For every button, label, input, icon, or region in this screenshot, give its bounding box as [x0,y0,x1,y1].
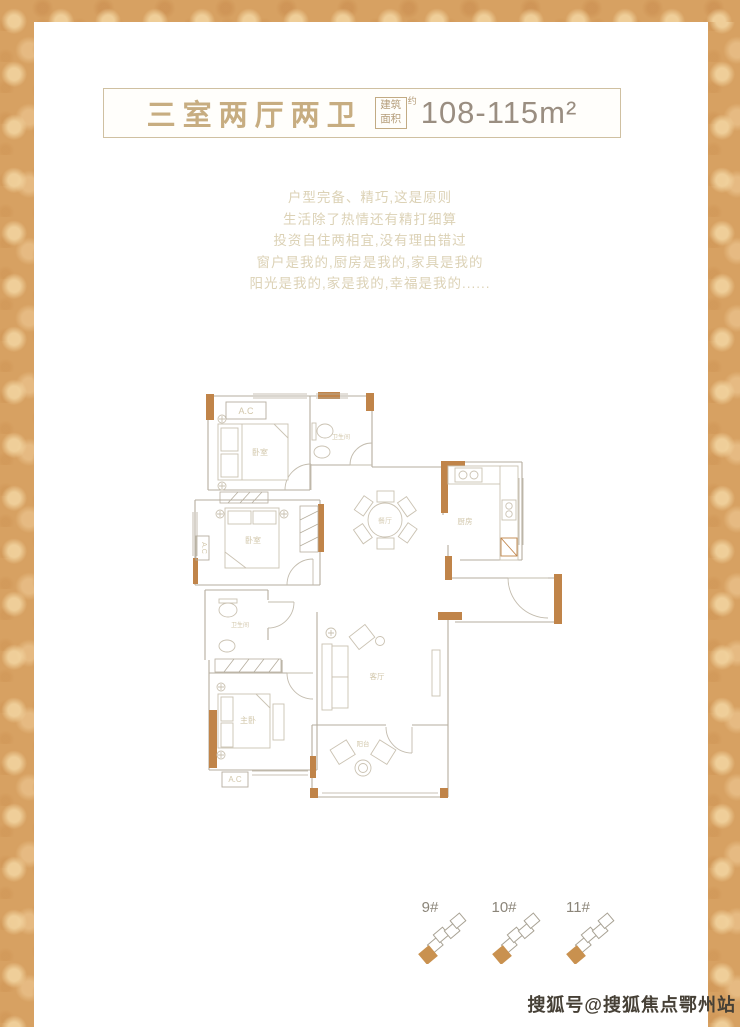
frame-right [708,0,740,1027]
area-unit: 建筑 面积 约 [375,97,417,129]
frame-top [0,0,740,22]
building-icon-10: 10# [482,894,554,964]
building-label-11: 11# [566,899,591,916]
floor-plan: A.C A.C A.C 卧室 卫生间 餐厅 厨房 卧室 卫生间 主卧 客厅 阳台 [185,385,565,805]
poem-line: 窗户是我的,厨房是我的,家具是我的 [0,252,740,274]
poem-line: 生活除了热情还有精打细算 [0,209,740,231]
frame-left [0,0,34,1027]
room-label-living: 客厅 [370,671,385,681]
floor-plan-furniture [216,415,518,776]
area-approx-mark: 约 [408,94,417,107]
building-key: 9# 10# 11# [408,894,628,964]
ac-label-bottom: A.C [228,775,242,784]
area-label-top: 建筑 [380,99,401,113]
unit-type-title: 三室两厅两卫 [147,92,363,134]
poem-line: 户型完备、精巧,这是原则 [0,187,740,209]
room-label-dining: 餐厅 [378,516,392,525]
poem-line: 投资自住两相宜,没有理由错过 [0,230,740,252]
area-label-bottom: 面积 [380,113,401,127]
marketing-poem: 户型完备、精巧,这是原则 生活除了热情还有精打细算 投资自住两相宜,没有理由错过… [0,187,740,295]
watermark: 搜狐号@搜狐焦点鄂州站 [0,991,736,1017]
room-label-balcony: 阳台 [357,739,370,748]
building-icon-9: 9# [408,894,480,964]
room-label-kitchen: 厨房 [458,516,473,526]
ac-label-top: A.C [238,406,254,416]
poem-line: 阳光是我的,家是我的,幸福是我的...... [0,273,740,295]
building-label-10: 10# [491,899,517,916]
room-label-bathroom-middle: 卫生间 [231,621,249,629]
ac-label-side: A.C [200,542,207,554]
room-label-bedroom-middle: 卧室 [245,535,261,545]
room-label-bathroom-top: 卫生间 [332,433,350,441]
room-label-bedroom-top: 卧室 [252,447,268,457]
area-label-box: 建筑 面积 [375,97,407,129]
room-label-master: 主卧 [240,715,256,725]
building-icon-11: 11# [556,894,628,964]
unit-title-box: 三室两厅两卫 建筑 面积 约 108-115m² [103,88,621,138]
area-value: 108-115m² [421,95,578,131]
building-label-9: 9# [422,899,439,916]
